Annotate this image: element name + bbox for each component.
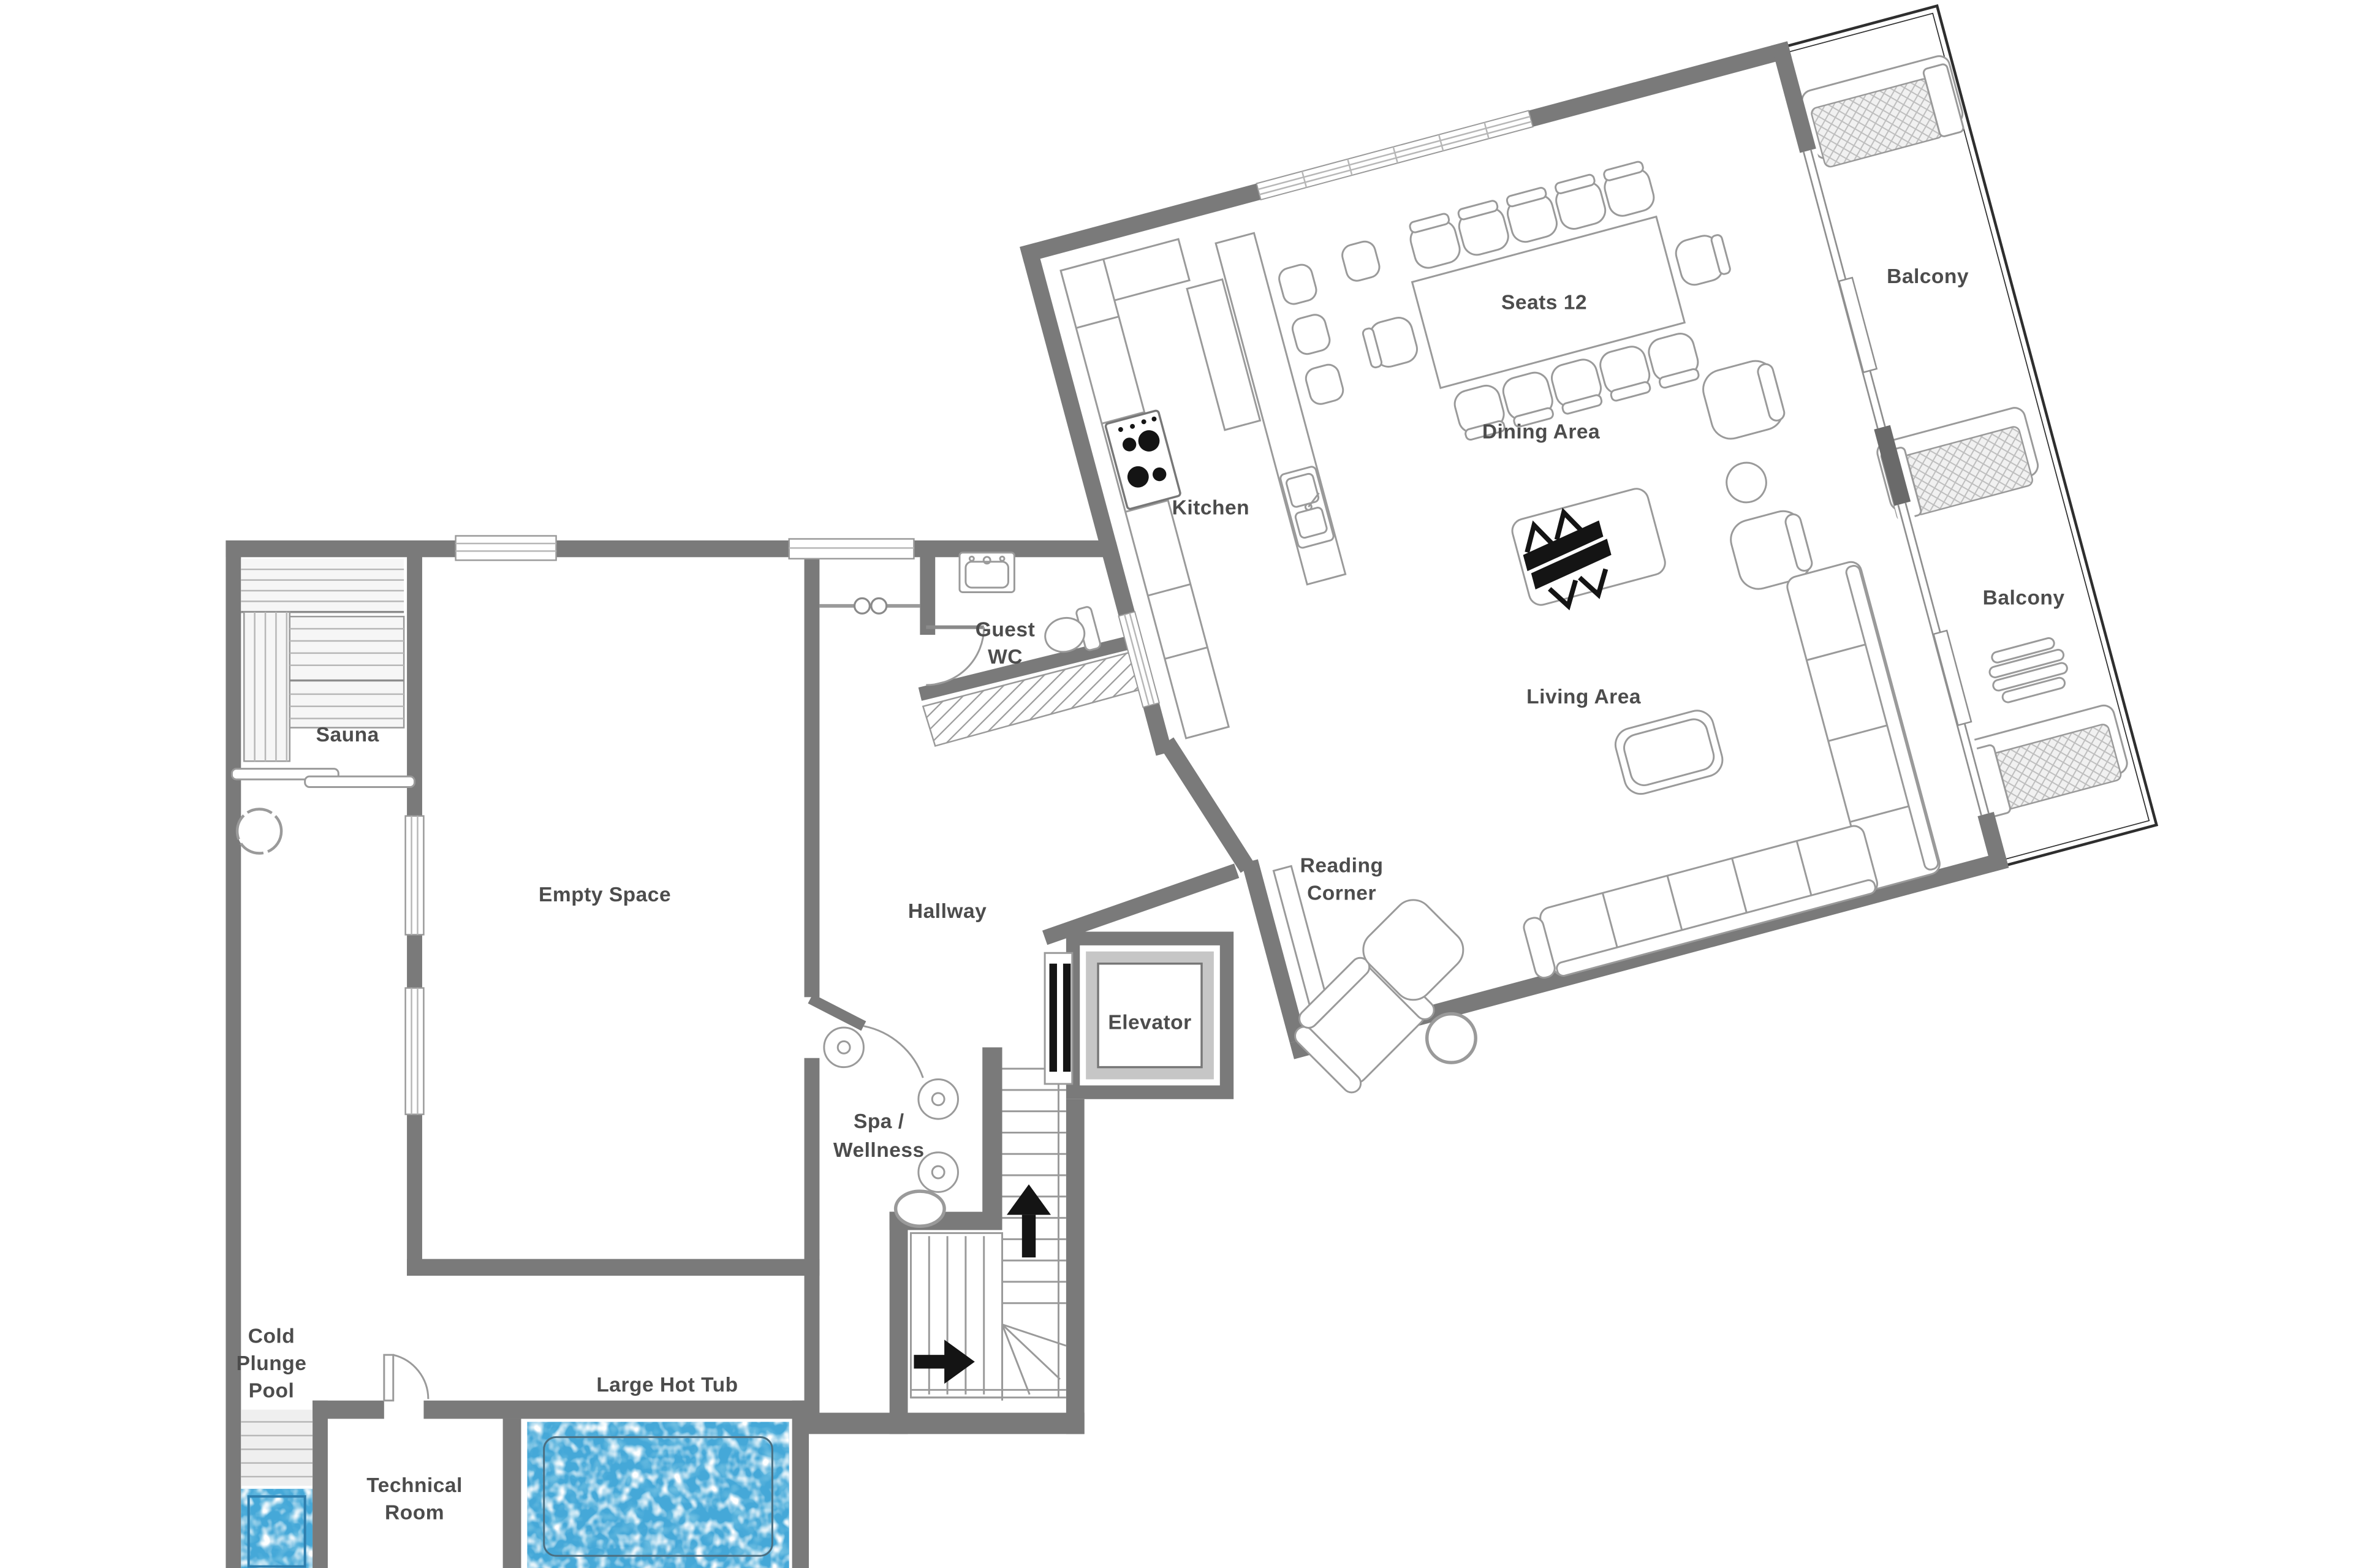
- elevator-door-icon: [1050, 964, 1057, 1072]
- upper-wing: [1020, 1, 2157, 1073]
- label-seats: Seats 12: [1501, 291, 1587, 314]
- cold-plunge-pool: [241, 1410, 313, 1568]
- label-spa-line1: Spa /: [854, 1110, 904, 1133]
- wall-hallway-west-lower: [805, 1058, 820, 1431]
- wall-stairroom-west: [890, 1212, 908, 1434]
- wall-lobby-north-angled: [1045, 871, 1237, 937]
- sauna-bench-top: [241, 559, 404, 612]
- label-living: Living Area: [1526, 686, 1641, 708]
- wall-coldplunge-east: [313, 1401, 328, 1568]
- label-technical-line1: Technical: [366, 1474, 463, 1497]
- wall-emptyspace-south: [407, 1259, 819, 1276]
- sliding-door-symbol: [819, 598, 920, 613]
- wall-stairshaft-west: [982, 1047, 1002, 1221]
- label-technical-line2: Room: [385, 1501, 444, 1524]
- sauna-shelf-b: [305, 776, 415, 787]
- tech-door-leaf: [384, 1355, 393, 1401]
- window-sauna-wall-a: [406, 816, 424, 935]
- label-balcony-upper: Balcony: [1887, 265, 1969, 288]
- window-north-b: [789, 539, 914, 559]
- spa-door-swing: [863, 1026, 923, 1078]
- label-cold-line2: Plunge: [237, 1352, 307, 1375]
- spa-door-leaf: [810, 999, 863, 1026]
- floor-plan-page: Sauna Empty Space Hallway Spa / Wellness…: [0, 0, 2353, 1568]
- tech-door-swing: [393, 1355, 428, 1399]
- label-hallway: Hallway: [908, 900, 987, 923]
- window-sauna-wall-b: [406, 988, 424, 1114]
- wall-hallway-west-upper: [805, 556, 820, 997]
- sauna-bench-inner: [290, 616, 404, 727]
- label-guest-wc-line1: Guest: [976, 619, 1036, 642]
- spa-stool: [919, 1079, 958, 1119]
- label-reading-line1: Reading: [1300, 855, 1384, 877]
- label-balcony-lower: Balcony: [1983, 586, 2065, 609]
- label-sauna: Sauna: [316, 724, 379, 746]
- wall-west: [225, 540, 241, 1568]
- sauna-heater-icon: [237, 809, 281, 853]
- label-hot-tub: Large Hot Tub: [596, 1374, 738, 1396]
- wc-sink: [960, 553, 1014, 593]
- lower-wing-windows: [406, 536, 914, 1115]
- wall-stairshaft-east: [1066, 1099, 1085, 1434]
- large-hot-tub: [527, 1422, 789, 1568]
- label-kitchen: Kitchen: [1172, 497, 1249, 520]
- sauna-room: [232, 559, 414, 854]
- cold-plunge-water: [241, 1489, 313, 1568]
- wall-spa-south: [805, 1413, 1085, 1434]
- reading-side-table: [1427, 1014, 1476, 1063]
- label-spa-line2: Wellness: [833, 1139, 925, 1162]
- stair-lower-flight: [911, 1233, 1066, 1397]
- wall-tech-east: [503, 1419, 521, 1568]
- label-elevator: Elevator: [1108, 1011, 1191, 1034]
- label-cold-line3: Pool: [249, 1380, 295, 1403]
- lower-wing: [225, 536, 1237, 1568]
- spa-stool: [824, 1028, 864, 1067]
- window-north-a: [456, 536, 556, 561]
- technical-room-door: [384, 1355, 428, 1420]
- tech-door-opening: [384, 1399, 424, 1420]
- label-reading-line2: Corner: [1307, 882, 1376, 904]
- stair-up-arrow-icon: [1007, 1184, 1051, 1257]
- floor-plan-canvas: Sauna Empty Space Hallway Spa / Wellness…: [0, 0, 2353, 1568]
- elevator-door-icon: [1063, 964, 1070, 1072]
- label-dining: Dining Area: [1482, 421, 1600, 444]
- label-cold-line1: Cold: [248, 1325, 295, 1347]
- sauna-bench-left: [244, 612, 290, 761]
- label-guest-wc-line2: WC: [988, 646, 1023, 668]
- spa-basin: [896, 1191, 945, 1226]
- wall-wc-west: [920, 556, 935, 635]
- label-empty-space: Empty Space: [539, 884, 671, 906]
